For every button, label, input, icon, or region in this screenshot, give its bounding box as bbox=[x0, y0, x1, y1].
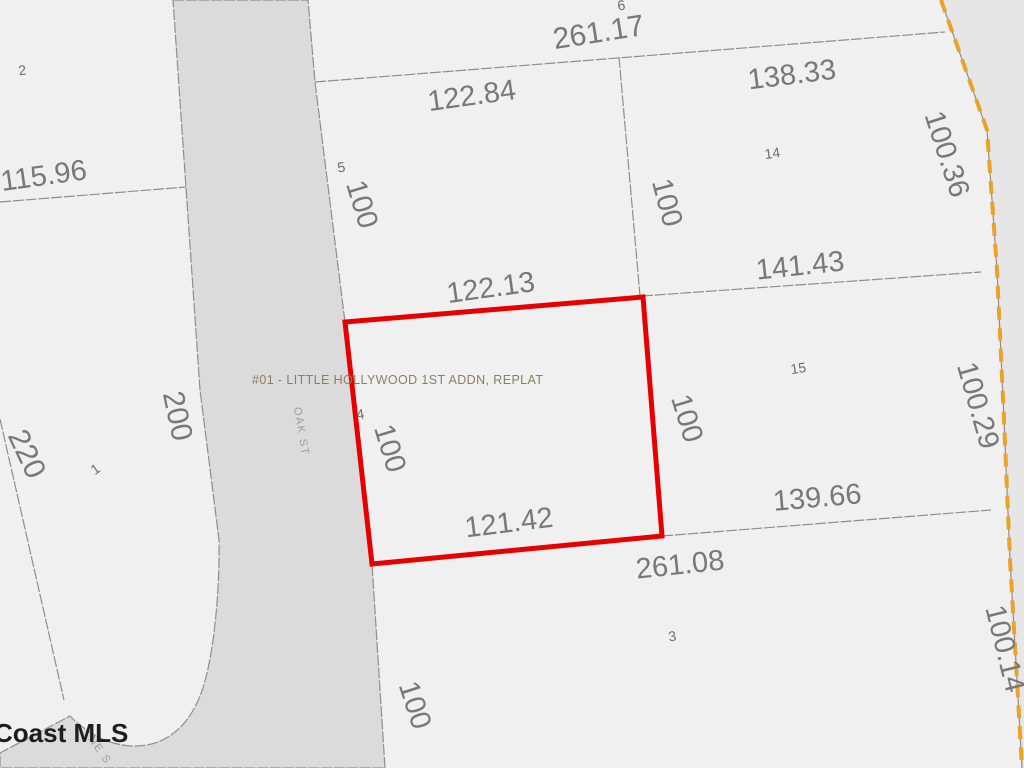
mls-watermark: Coast MLS bbox=[0, 718, 128, 748]
plat-map-svg: 261.17 122.84 138.33 100.36 115.96 100 1… bbox=[0, 0, 1024, 768]
lot-number-14: 14 bbox=[763, 144, 781, 162]
lot-number-15: 15 bbox=[789, 359, 807, 377]
plat-map: 261.17 122.84 138.33 100.36 115.96 100 1… bbox=[0, 0, 1024, 768]
plat-name-label: #01 - LITTLE HOLLYWOOD 1ST ADDN, REPLAT bbox=[252, 373, 543, 387]
